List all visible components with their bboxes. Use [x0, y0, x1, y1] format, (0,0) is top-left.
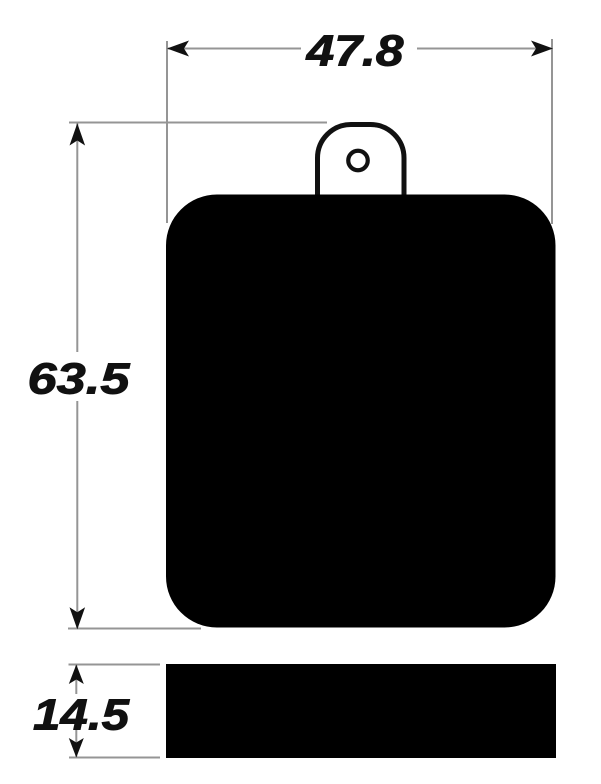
- svg-text:14.5: 14.5: [33, 691, 130, 740]
- svg-text:63.5: 63.5: [28, 355, 131, 404]
- svg-text:47.8: 47.8: [305, 27, 404, 76]
